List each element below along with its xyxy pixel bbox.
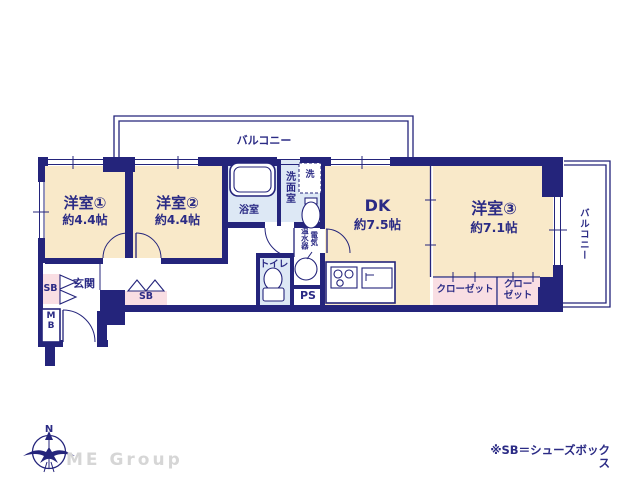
water-heater-icon xyxy=(295,252,317,280)
bathtub-icon xyxy=(230,163,275,196)
window-dk-top xyxy=(331,160,390,165)
washroom-label: 洗面室 xyxy=(283,171,295,204)
shoebox-right-door-icon xyxy=(128,280,164,291)
room-label-western2: 洋室② xyxy=(133,195,222,212)
bathroom-label: 浴室 xyxy=(229,205,269,217)
room-size-western2: 約4.4帖 xyxy=(133,214,222,228)
kitchen-counter-icon xyxy=(326,262,395,303)
shoebox-right-label: SB xyxy=(126,292,166,303)
shoebox-left-label: SB xyxy=(41,284,60,295)
room-label-western3: 洋室③ xyxy=(433,200,555,218)
room-size-western3: 約7.1帖 xyxy=(433,221,555,235)
closet1-label: クローゼット xyxy=(433,285,497,296)
room-size-dk: 約7.5帖 xyxy=(325,218,430,232)
closet2-label: クロー ゼット xyxy=(498,280,538,302)
shoebox-note: ※SB＝シューズボックス xyxy=(480,444,610,470)
meter-box-label: M B xyxy=(43,312,59,332)
window-west1-top xyxy=(48,160,103,165)
watermark-logo-text: ME Group xyxy=(66,450,183,470)
water-heater-label: 電気 温水器 xyxy=(300,227,319,250)
room-label-western1: 洋室① xyxy=(45,195,125,212)
window-west1-left xyxy=(40,182,45,238)
room-size-western1: 約4.4帖 xyxy=(45,214,125,228)
balcony-right-label: バルコニー xyxy=(577,208,588,261)
room-label-dk: DK xyxy=(325,197,430,215)
toilet-label: トイレ xyxy=(258,260,290,271)
compass-north-label: N xyxy=(43,424,55,436)
door-entrance xyxy=(63,310,95,342)
washbasin-icon xyxy=(302,198,320,228)
floor-plan-drawing xyxy=(0,0,640,480)
door-washroom xyxy=(265,228,294,257)
balcony-top-label: バルコニー xyxy=(214,135,314,148)
window-west2-top xyxy=(135,160,198,165)
toilet-icon xyxy=(263,268,284,301)
laundry-label: 洗 xyxy=(302,170,318,180)
entrance-label: 玄関 xyxy=(66,278,102,291)
window-west3-right xyxy=(555,197,561,265)
pipe-space-label: PS xyxy=(294,290,322,303)
floor-plan: 洋室① 約4.4帖 洋室② 約4.4帖 DK 約7.5帖 洋室③ 約7.1帖 バ… xyxy=(0,0,640,480)
